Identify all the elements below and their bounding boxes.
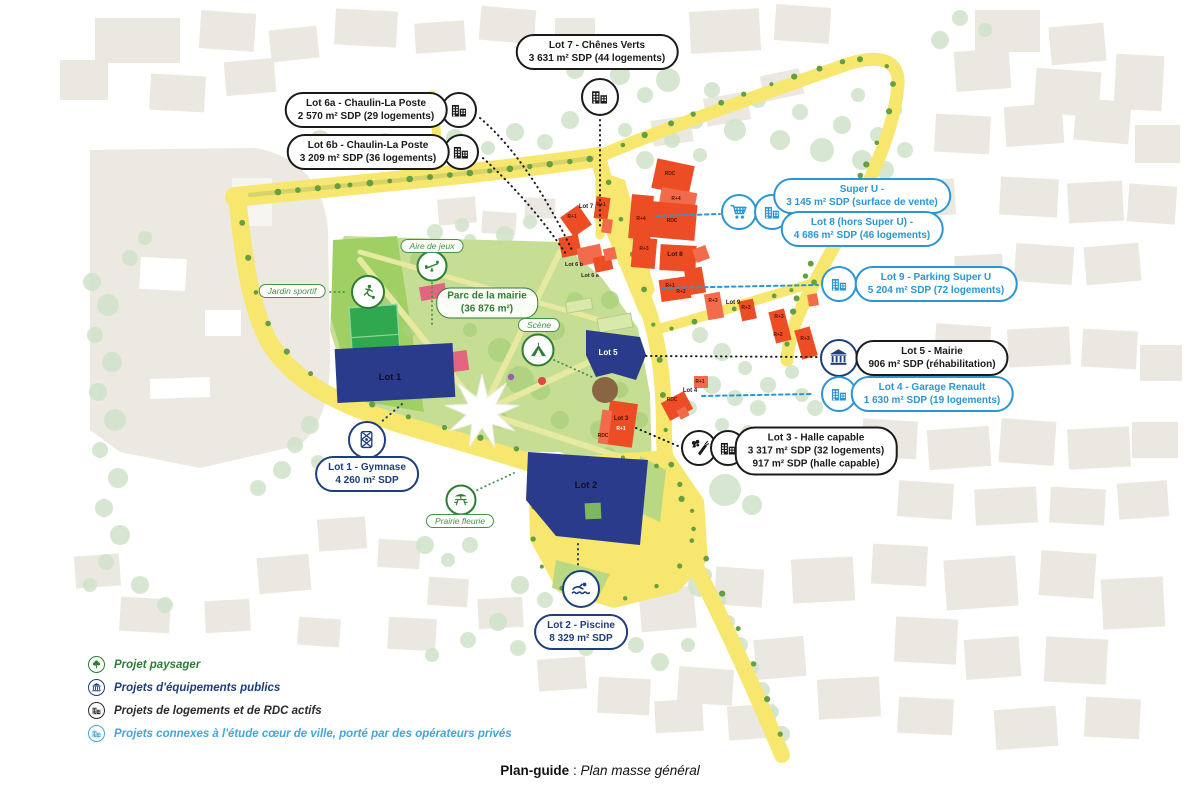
- callout-lot6b: Lot 6b - Chaulin-La Poste 3 209 m² SDP (…: [287, 134, 450, 170]
- callout-lot3-line3: 917 m² SDP (halle capable): [748, 458, 885, 471]
- label-jardin-sportif: Jardin sportif: [259, 284, 326, 298]
- map-label: Lot 4: [683, 388, 698, 394]
- legend-label: Projet paysager: [114, 659, 200, 671]
- map-label: Lot 6 b: [565, 262, 584, 268]
- callout-lot6a-line1: Lot 6a - Chaulin-La Poste: [298, 97, 435, 110]
- cart-icon: [721, 194, 757, 230]
- stage-tent-icon: [522, 334, 555, 367]
- callout-lot4-line1: Lot 4 - Garage Renault: [864, 381, 1001, 394]
- callout-lot1: Lot 1 - Gymnase 4 260 m² SDP: [315, 456, 419, 492]
- label-parc-mairie-line1: Parc de la mairie: [447, 291, 527, 304]
- map-label: RDC: [667, 218, 678, 224]
- bank-icon: [88, 679, 105, 696]
- callout-superu-line1: Super U -: [786, 183, 938, 196]
- legend-item-connexes: Projets connexes à l'étude cœur de ville…: [88, 725, 512, 742]
- callout-lot4: Lot 4 - Garage Renault 1 630 m² SDP (19 …: [851, 376, 1014, 412]
- legend-label: Projets connexes à l'étude cœur de ville…: [114, 728, 512, 740]
- map-label: R+4: [671, 196, 681, 202]
- callout-lot7: Lot 7 - Chênes Verts 3 631 m² SDP (44 lo…: [516, 34, 679, 70]
- label-parc-mairie-line2: (36 876 m²): [447, 303, 527, 316]
- gym-icon: [348, 421, 386, 459]
- map-label: R+1: [665, 283, 675, 289]
- callout-lot5-line1: Lot 5 - Mairie: [868, 345, 995, 358]
- map-label: Lot 5: [598, 348, 618, 357]
- callout-lot8-line2: 4 686 m² SDP (46 logements): [794, 229, 931, 242]
- soccer-player-icon: [351, 275, 385, 309]
- callout-lot3-line2: 3 317 m² SDP (32 logements): [748, 445, 885, 458]
- building-icon: [88, 725, 105, 742]
- lot7-building-icon: [581, 78, 619, 116]
- label-scene: Scène: [518, 318, 560, 332]
- map-label: Lot 3: [614, 416, 629, 422]
- map-label: Lot 7: [579, 204, 594, 210]
- map-label: R+3: [708, 298, 718, 304]
- callout-lot6a-line2: 2 570 m² SDP (29 logements): [298, 110, 435, 123]
- legend-label: Projets d'équipements publics: [114, 682, 280, 694]
- callout-lot2-line1: Lot 2 - Piscine: [547, 619, 615, 632]
- legend-item-paysager: Projet paysager: [88, 656, 512, 673]
- mairie-bank-icon: [820, 339, 858, 377]
- label-parc-mairie: Parc de la mairie (36 876 m²): [436, 288, 538, 319]
- callout-superu: Super U - 3 145 m² SDP (surface de vente…: [773, 178, 951, 214]
- callout-lot4-line2: 1 630 m² SDP (19 logements): [864, 394, 1001, 407]
- map-label: Lot 6 a: [581, 273, 600, 279]
- map-label: R+3: [639, 246, 649, 252]
- legend-item-logements: Projets de logements et de RDC actifs: [88, 702, 512, 719]
- caption-text: Plan masse général: [580, 763, 699, 778]
- callout-lot7-line2: 3 631 m² SDP (44 logements): [529, 52, 666, 65]
- callout-lot6b-line1: Lot 6b - Chaulin-La Poste: [300, 139, 437, 152]
- callout-lot1-line1: Lot 1 - Gymnase: [328, 461, 406, 474]
- callout-lot6b-line2: 3 209 m² SDP (36 logements): [300, 152, 437, 165]
- map-label: Lot 8: [667, 251, 683, 258]
- callout-lot9: Lot 9 - Parking Super U 5 204 m² SDP (72…: [855, 266, 1018, 302]
- map-label: R+1: [567, 214, 577, 220]
- caption: Plan-guide : Plan masse général: [0, 763, 1200, 778]
- map-label: R+3: [800, 336, 810, 342]
- callout-lot7-line1: Lot 7 - Chênes Verts: [529, 39, 666, 52]
- callout-lot5-line2: 906 m² SDP (réhabilitation): [868, 358, 995, 371]
- map-label: R+3: [774, 314, 784, 320]
- tree-icon: [88, 656, 105, 673]
- legend-label: Projets de logements et de RDC actifs: [114, 705, 322, 717]
- building-icon: [88, 702, 105, 719]
- map-label: R+1: [616, 426, 626, 432]
- map-label: Lot 1: [379, 372, 402, 383]
- label-aire-de-jeux: Aire de jeux: [401, 239, 464, 253]
- callout-lot6a: Lot 6a - Chaulin-La Poste 2 570 m² SDP (…: [285, 92, 448, 128]
- picnic-table-icon: [446, 485, 477, 516]
- callout-lot5: Lot 5 - Mairie 906 m² SDP (réhabilitatio…: [855, 340, 1008, 376]
- callout-lot3: Lot 3 - Halle capable 3 317 m² SDP (32 l…: [735, 427, 898, 476]
- callout-lot3-line1: Lot 3 - Halle capable: [748, 432, 885, 445]
- map-label: R+1: [695, 379, 705, 385]
- map-label: R+4: [636, 216, 646, 222]
- plan-guide-page: Lot 7Lot 6 bLot 6 aLot 8Lot 9Lot 5Lot 1L…: [0, 0, 1200, 800]
- legend-item-equipements: Projets d'équipements publics: [88, 679, 512, 696]
- map-label: R+2: [676, 289, 686, 295]
- map-label: RDC: [665, 171, 676, 177]
- map-label: RDC: [667, 397, 678, 403]
- callout-lot8: Lot 8 (hors Super U) - 4 686 m² SDP (46 …: [781, 211, 944, 247]
- label-prairie-fleurie: Prairie fleurie: [426, 514, 494, 528]
- callout-lot2: Lot 2 - Piscine 8 329 m² SDP: [534, 614, 628, 650]
- caption-term: Plan-guide: [500, 763, 569, 778]
- map-label: R+1: [596, 202, 606, 208]
- map-label: R+3: [741, 305, 751, 311]
- callout-lot8-line1: Lot 8 (hors Super U) -: [794, 216, 931, 229]
- map-label: R+2: [773, 332, 783, 338]
- callout-lot2-line2: 8 329 m² SDP: [547, 632, 615, 645]
- swimmer-icon: [562, 570, 600, 608]
- callout-lot1-line2: 4 260 m² SDP: [328, 474, 406, 487]
- map-label: Lot 9: [726, 300, 741, 306]
- lot9-building-icon: [821, 266, 857, 302]
- callout-superu-line2: 3 145 m² SDP (surface de vente): [786, 196, 938, 209]
- legend: Projet paysager Projets d'équipements pu…: [88, 656, 512, 748]
- callout-lot9-line2: 5 204 m² SDP (72 logements): [868, 284, 1005, 297]
- caption-separator: :: [569, 763, 580, 778]
- map-label: RDC: [598, 433, 609, 439]
- callout-lot9-line1: Lot 9 - Parking Super U: [868, 271, 1005, 284]
- seesaw-icon: [417, 251, 448, 282]
- map-label: Lot 2: [575, 480, 598, 491]
